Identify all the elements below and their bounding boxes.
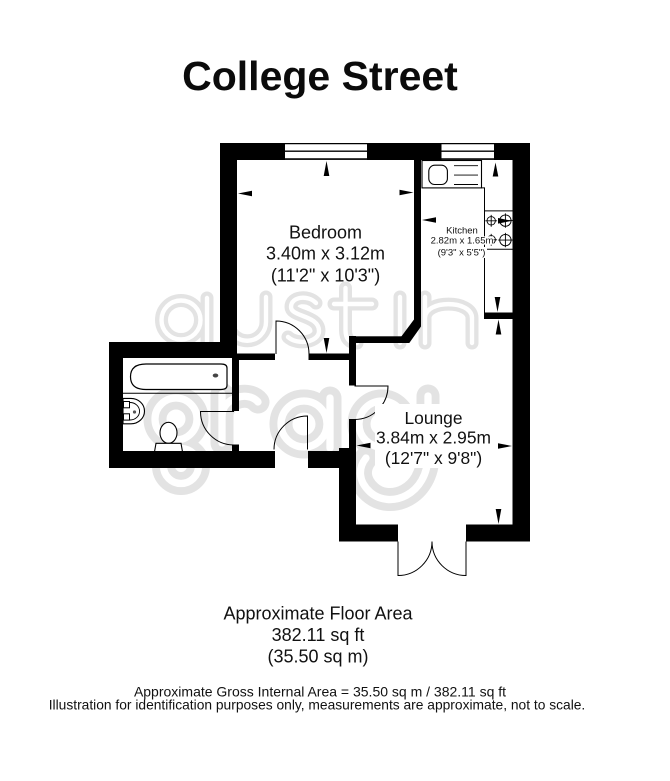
svg-text:3.84m x 2.95m: 3.84m x 2.95m: [376, 428, 491, 448]
svg-text:(11'2" x 10'3"): (11'2" x 10'3"): [271, 265, 380, 285]
svg-text:382.11 sq ft: 382.11 sq ft: [272, 625, 365, 645]
svg-text:(9'3" x 5'5"): (9'3" x 5'5"): [438, 248, 486, 259]
svg-text:Approximate Floor Area: Approximate Floor Area: [223, 604, 413, 624]
svg-text:(35.50 sq m): (35.50 sq m): [267, 647, 368, 667]
svg-text:Lounge: Lounge: [404, 408, 462, 428]
svg-text:Illustration for identificatio: Illustration for identification purposes…: [49, 698, 586, 713]
svg-text:3.40m x 3.12m: 3.40m x 3.12m: [266, 244, 385, 264]
svg-text:Bedroom: Bedroom: [289, 223, 362, 243]
svg-text:(12'7" x 9'8"): (12'7" x 9'8"): [385, 448, 482, 468]
svg-text:College Street: College Street: [182, 53, 458, 99]
svg-text:2.82m x 1.65m: 2.82m x 1.65m: [431, 236, 494, 247]
